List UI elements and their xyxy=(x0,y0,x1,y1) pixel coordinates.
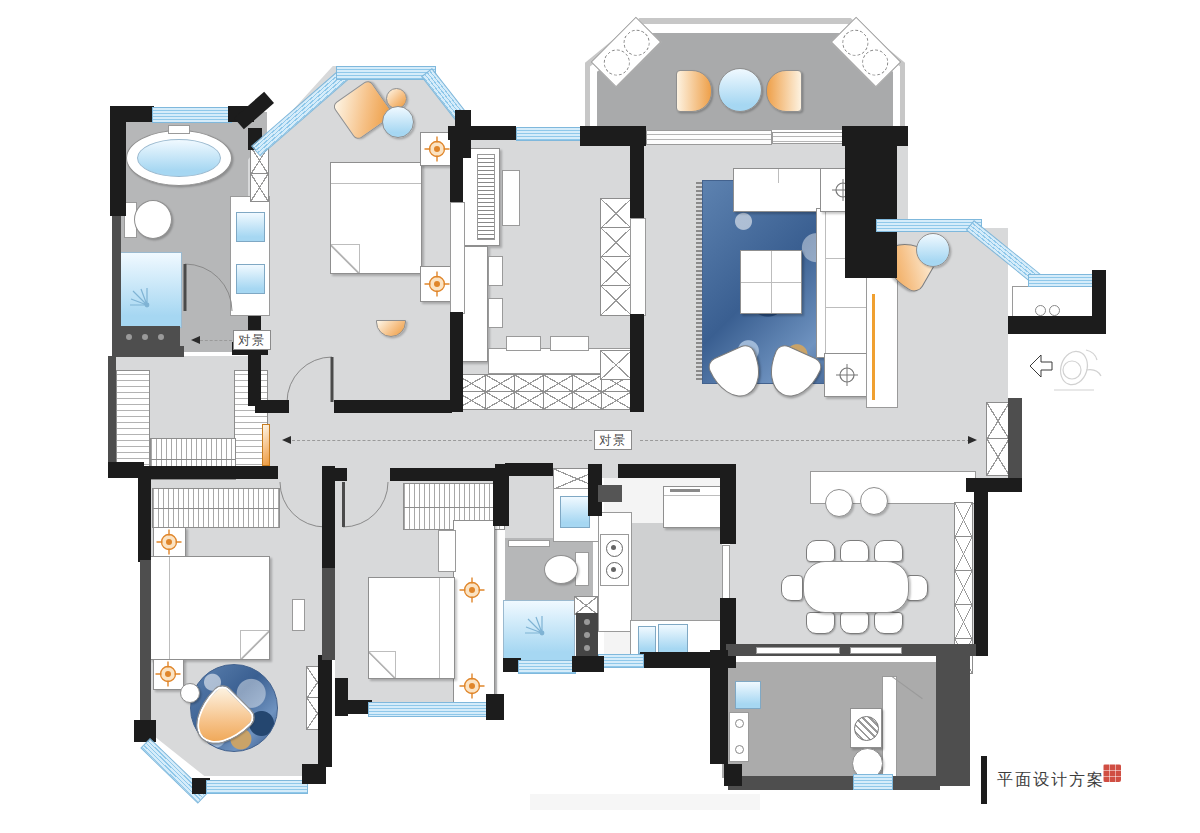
rod-line xyxy=(153,508,279,509)
faint-watermark xyxy=(530,794,760,810)
stool xyxy=(506,336,541,351)
wall xyxy=(302,764,326,784)
dining-cabinet-cell xyxy=(954,502,973,538)
stool xyxy=(550,336,589,351)
wall xyxy=(112,346,184,357)
foyer-cabinet-cell xyxy=(986,402,1010,440)
wall xyxy=(1008,316,1106,334)
wall xyxy=(134,720,156,742)
wardrobe-hanging xyxy=(152,488,280,528)
cabinet-knob xyxy=(126,334,132,340)
bar-stool xyxy=(825,489,853,517)
compass-lamp-icon xyxy=(458,672,486,700)
wall xyxy=(630,314,644,412)
compass-lamp-icon xyxy=(423,270,451,298)
cabinet-knob xyxy=(158,334,164,340)
wardrobe-cell xyxy=(572,391,603,410)
toilet-bowl xyxy=(134,200,172,239)
chaise-line xyxy=(778,169,779,183)
shower-head-icon xyxy=(518,609,552,643)
cooktop xyxy=(600,534,629,586)
wall xyxy=(112,216,121,348)
laundry-sink xyxy=(735,681,761,709)
bedroom1-door-arc xyxy=(285,355,334,404)
sightline-dash xyxy=(292,440,592,441)
heater-knob xyxy=(735,745,744,754)
dining-chair xyxy=(840,612,869,634)
wardrobe-cell xyxy=(514,391,545,410)
foyer-cabinet-cell xyxy=(986,438,1010,476)
dining-chair xyxy=(806,540,835,562)
floor-lamp xyxy=(180,683,200,703)
sightline-dash xyxy=(640,440,970,441)
bar-stool xyxy=(860,487,888,515)
rod-line xyxy=(151,459,235,460)
laundry-column xyxy=(882,676,897,778)
kitchen-island-floor xyxy=(630,523,722,625)
crosshair-icon xyxy=(835,363,859,387)
wardrobe-cell xyxy=(600,198,632,229)
table-divider xyxy=(741,282,801,283)
fridge-handle xyxy=(670,489,700,492)
side-table xyxy=(824,353,870,397)
window xyxy=(206,780,308,794)
wall xyxy=(334,400,452,413)
bed2 xyxy=(150,556,270,660)
cabinet-knob xyxy=(584,619,590,625)
fridge-line xyxy=(664,495,720,496)
wall xyxy=(505,463,553,476)
washing-machine xyxy=(850,708,882,748)
wall xyxy=(318,655,332,767)
wardrobe-cell xyxy=(485,391,516,410)
plan-title: 平面设计方案 xyxy=(997,770,1105,791)
bed3 xyxy=(368,577,455,679)
washer-drum xyxy=(854,716,879,741)
wall xyxy=(572,656,604,672)
wall-cabinet xyxy=(630,218,646,316)
chaise-bench xyxy=(733,168,823,212)
wall xyxy=(728,776,940,790)
window xyxy=(368,702,492,717)
wall-cabinet xyxy=(450,202,465,314)
window xyxy=(598,654,644,668)
compass-lamp-icon xyxy=(154,660,182,688)
wardrobe-cell xyxy=(600,285,632,316)
compass-lamp-icon xyxy=(458,576,486,604)
rod-line xyxy=(404,507,504,508)
window xyxy=(518,660,576,674)
round-side-table xyxy=(382,106,414,138)
wall xyxy=(108,356,116,478)
wall xyxy=(936,650,970,786)
dining-chair xyxy=(874,612,903,634)
burner-dot xyxy=(611,545,616,550)
wall xyxy=(108,462,144,478)
bed-master xyxy=(330,162,422,274)
vista-label: 对景 xyxy=(233,330,271,350)
wall xyxy=(322,568,335,660)
tv-wall xyxy=(845,140,897,278)
wardrobe-cell xyxy=(600,350,632,380)
wall xyxy=(493,468,507,526)
wall xyxy=(448,126,516,140)
vanity-sink xyxy=(560,496,590,528)
balcony-sliding-door xyxy=(646,130,772,145)
laundry-floor xyxy=(722,662,938,778)
dining-table xyxy=(803,561,909,613)
wall xyxy=(140,466,278,479)
pillow-line xyxy=(169,557,170,659)
wall xyxy=(720,464,736,544)
vanity-sink xyxy=(236,212,265,242)
wall xyxy=(450,312,463,412)
wall xyxy=(486,694,504,720)
piano-keys xyxy=(477,154,495,240)
heater-knob xyxy=(735,719,744,728)
dining-chair xyxy=(840,540,869,562)
bathroom-door-arc xyxy=(183,262,234,313)
sightline-arrow-left xyxy=(282,436,291,444)
wall xyxy=(322,466,335,568)
bathroom2-dry-floor xyxy=(505,478,555,540)
desk-chair xyxy=(488,298,503,328)
wardrobe-cell xyxy=(601,391,632,410)
floor-plan-canvas: 对景 对景 平面设计方案 xyxy=(0,0,1200,833)
tv-cabinet xyxy=(866,256,898,408)
wall xyxy=(140,560,151,728)
wall xyxy=(974,478,988,656)
tv-screen xyxy=(872,294,875,400)
counter-bowl xyxy=(1049,305,1060,316)
wardrobe-cell xyxy=(600,256,632,287)
wall xyxy=(724,764,742,786)
pillow-line xyxy=(439,578,440,678)
rug-fringe xyxy=(696,182,702,380)
wall xyxy=(1008,398,1022,480)
red-seal-stamp xyxy=(1103,764,1121,782)
dining-chair xyxy=(781,575,803,601)
kitchen-sink xyxy=(658,624,688,654)
bedroom-closet-cell xyxy=(250,173,269,202)
shower-area xyxy=(503,600,575,662)
bathtub-basin xyxy=(137,139,221,177)
window-slit xyxy=(756,647,840,654)
wall xyxy=(720,598,736,650)
bay-window xyxy=(1028,274,1102,287)
coffee-table xyxy=(740,250,802,314)
wall-box xyxy=(598,485,622,502)
nightstand xyxy=(153,527,186,558)
cabinet-knob xyxy=(142,334,148,340)
wall xyxy=(335,468,347,481)
wall xyxy=(335,678,348,716)
dining-chair xyxy=(906,575,928,601)
sofa-cushion-line xyxy=(825,307,867,308)
dining-cabinet-cell xyxy=(954,604,973,640)
counter-bowl xyxy=(1035,305,1046,316)
balcony-lounge-chair xyxy=(766,70,802,112)
bath-tall-cabinet xyxy=(576,613,598,659)
compass-lamp-icon xyxy=(155,528,183,556)
bedroom2-door-arc xyxy=(278,480,327,529)
water-heater xyxy=(729,712,749,762)
wardrobe-cell xyxy=(543,391,574,410)
dining-chair xyxy=(806,612,835,634)
bedroom3-door-arc xyxy=(342,480,391,529)
dining-cabinet-cell xyxy=(954,536,973,572)
burner-dot xyxy=(611,567,616,572)
shower-head-icon xyxy=(123,281,157,315)
window-slit xyxy=(850,647,902,654)
vanity-sink xyxy=(236,264,265,294)
balcony-table xyxy=(718,68,762,112)
kitchen-door-leaf xyxy=(722,545,730,602)
wall xyxy=(390,468,504,481)
dining-chair xyxy=(874,540,903,562)
titleblock-bar xyxy=(981,756,987,804)
blanket-fold xyxy=(240,630,269,659)
balcony-sliding-door xyxy=(772,132,844,144)
compass-lamp-icon xyxy=(423,135,451,163)
sofa-back-line xyxy=(825,209,826,357)
wall xyxy=(138,466,151,562)
wall xyxy=(618,464,728,478)
blanket-fold xyxy=(331,244,360,273)
bay-round-table xyxy=(916,233,950,267)
corridor-accent-strip xyxy=(262,424,270,466)
bathroom-cabinet xyxy=(118,326,180,348)
sightline-arrow-left xyxy=(191,336,200,344)
wall xyxy=(110,106,126,216)
wardrobe-cell xyxy=(600,227,632,258)
cabinet-knob xyxy=(584,645,590,651)
refrigerator xyxy=(663,486,721,528)
vista-label: 对景 xyxy=(594,430,632,450)
entry-figure-sketch xyxy=(1046,340,1108,398)
shower-area xyxy=(118,252,182,328)
bathtub-faucet xyxy=(168,125,190,134)
sightline-arrow-right xyxy=(968,436,977,444)
sliding-door xyxy=(508,540,550,547)
window xyxy=(152,107,232,123)
bedside-table xyxy=(292,599,305,631)
nightstand xyxy=(153,659,184,690)
wall xyxy=(710,650,728,764)
dining-cabinet-cell xyxy=(954,570,973,606)
cabinet-knob xyxy=(584,632,590,638)
sightline-dash xyxy=(200,340,232,341)
desk-chair xyxy=(488,256,503,286)
wall xyxy=(1092,270,1106,320)
window xyxy=(853,774,893,790)
blanket-fold xyxy=(369,651,396,678)
toilet-bowl xyxy=(544,555,578,584)
piano-bench xyxy=(502,170,520,226)
wall xyxy=(580,126,646,146)
kitchen-sink xyxy=(638,626,656,654)
pillow-line xyxy=(331,183,421,184)
shelf xyxy=(438,530,456,572)
